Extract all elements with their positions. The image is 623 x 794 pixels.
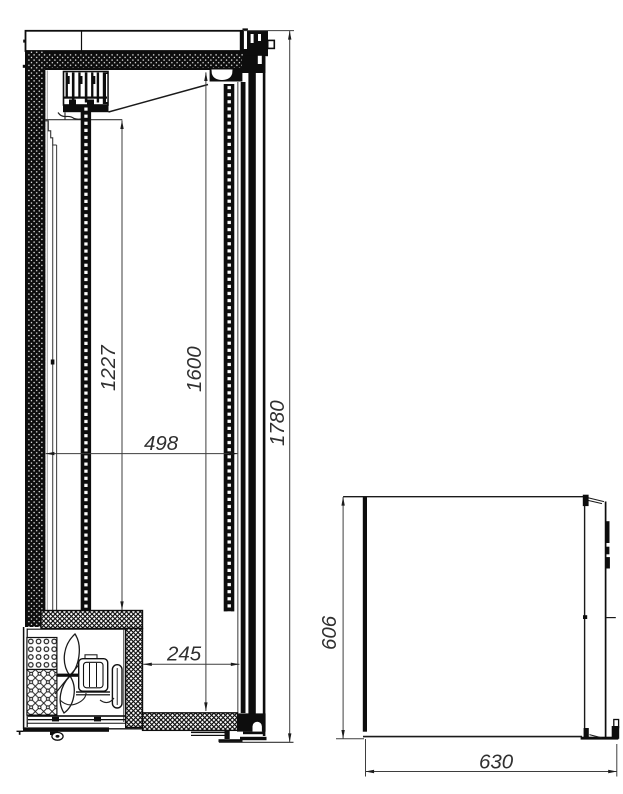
svg-text:1600: 1600 <box>183 346 206 392</box>
svg-text:1227: 1227 <box>97 344 120 391</box>
svg-text:630: 630 <box>479 751 514 774</box>
svg-text:245: 245 <box>166 643 202 666</box>
svg-text:606: 606 <box>318 615 341 650</box>
svg-text:1780: 1780 <box>266 400 289 446</box>
svg-text:498: 498 <box>144 432 179 455</box>
